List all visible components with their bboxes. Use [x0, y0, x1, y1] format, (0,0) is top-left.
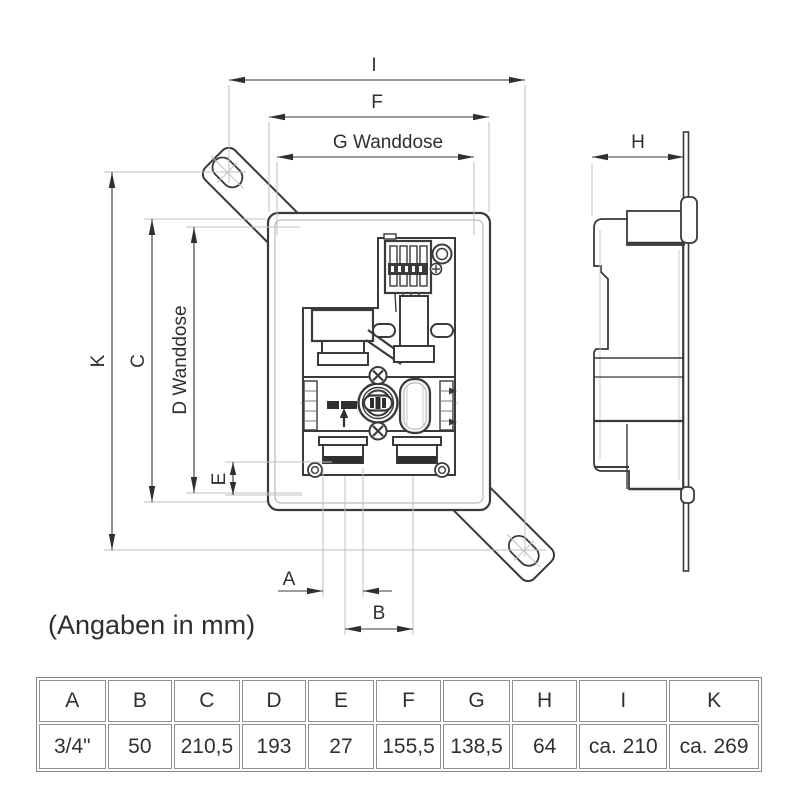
dim-label-g-wanddose: G Wanddose — [333, 132, 443, 153]
side-view — [594, 132, 697, 571]
dim-D — [191, 227, 197, 493]
table-value-cell: ca. 269 — [669, 724, 759, 769]
dim-label-f: F — [371, 92, 383, 113]
table-value-cell: 210,5 — [174, 724, 240, 769]
table-value-cell: 3/4" — [39, 724, 106, 769]
units-note: (Angaben in mm) — [48, 610, 255, 640]
dim-label-h: H — [631, 132, 645, 153]
dim-E — [230, 462, 236, 495]
dimension-table: A B C D E F G H I K 3/4" 50 210,5 193 27… — [36, 677, 762, 772]
table-value-cell: 138,5 — [443, 724, 510, 769]
pipe-stub-left — [319, 437, 367, 463]
dim-K — [109, 172, 115, 550]
dim-F — [269, 114, 489, 120]
cartridge-cylinder — [400, 379, 430, 433]
box-side-profile — [594, 219, 683, 489]
table-header-cell: E — [308, 680, 374, 722]
dim-label-k: K — [88, 354, 109, 367]
panel-slot — [431, 324, 453, 337]
slider-handle — [327, 401, 357, 409]
table-header-cell: K — [669, 680, 759, 722]
table-header-row: A B C D E F G H I K — [39, 680, 759, 722]
terminal-box-side — [627, 211, 684, 245]
corner-screw-icon — [308, 463, 322, 477]
left-rail — [304, 381, 317, 430]
table-header-cell: H — [512, 680, 578, 722]
dim-H — [592, 154, 684, 160]
terminal-cap-side — [681, 197, 697, 243]
table-header-cell: C — [174, 680, 240, 722]
table-value-cell: 27 — [308, 724, 374, 769]
table-header-cell: I — [579, 680, 667, 722]
dim-C — [149, 219, 155, 502]
table-header-cell: G — [443, 680, 510, 722]
table-value-cell: 193 — [242, 724, 307, 769]
technical-drawing: I F G Wanddose H K C D Wanddose E A B (A… — [0, 0, 800, 665]
table-header-cell: B — [108, 680, 173, 722]
central-valve — [359, 384, 398, 423]
table-value-cell: 155,5 — [376, 724, 442, 769]
bottom-cap-side — [681, 487, 694, 503]
table-header-cell: F — [376, 680, 442, 722]
table-value-cell: 50 — [108, 724, 173, 769]
corner-screw-icon — [435, 463, 449, 477]
dim-B — [345, 626, 413, 632]
table-header-cell: D — [242, 680, 307, 722]
dim-label-a: A — [283, 569, 296, 590]
screw-x-top-icon — [370, 367, 387, 384]
table-value-cell: ca. 210 — [579, 724, 667, 769]
dim-label-i: I — [371, 55, 376, 76]
screw-icon — [431, 264, 442, 275]
table-value-row: 3/4" 50 210,5 193 27 155,5 138,5 64 ca. … — [39, 724, 759, 769]
solenoid-valve — [394, 296, 434, 362]
inlet-block — [312, 310, 373, 365]
dim-label-e: E — [209, 473, 230, 486]
dim-label-c: C — [128, 354, 149, 368]
table-header-cell: A — [39, 680, 106, 722]
panel-slot — [373, 324, 395, 337]
table-value-cell: 64 — [512, 724, 578, 769]
dim-label-b: B — [373, 603, 386, 624]
front-view — [268, 213, 490, 635]
screw-x-bottom-icon — [370, 423, 387, 440]
dim-G — [277, 154, 474, 160]
dim-I — [229, 77, 525, 83]
pipe-stub-right — [393, 437, 441, 463]
dim-label-d-wanddose: D Wanddose — [170, 305, 191, 414]
